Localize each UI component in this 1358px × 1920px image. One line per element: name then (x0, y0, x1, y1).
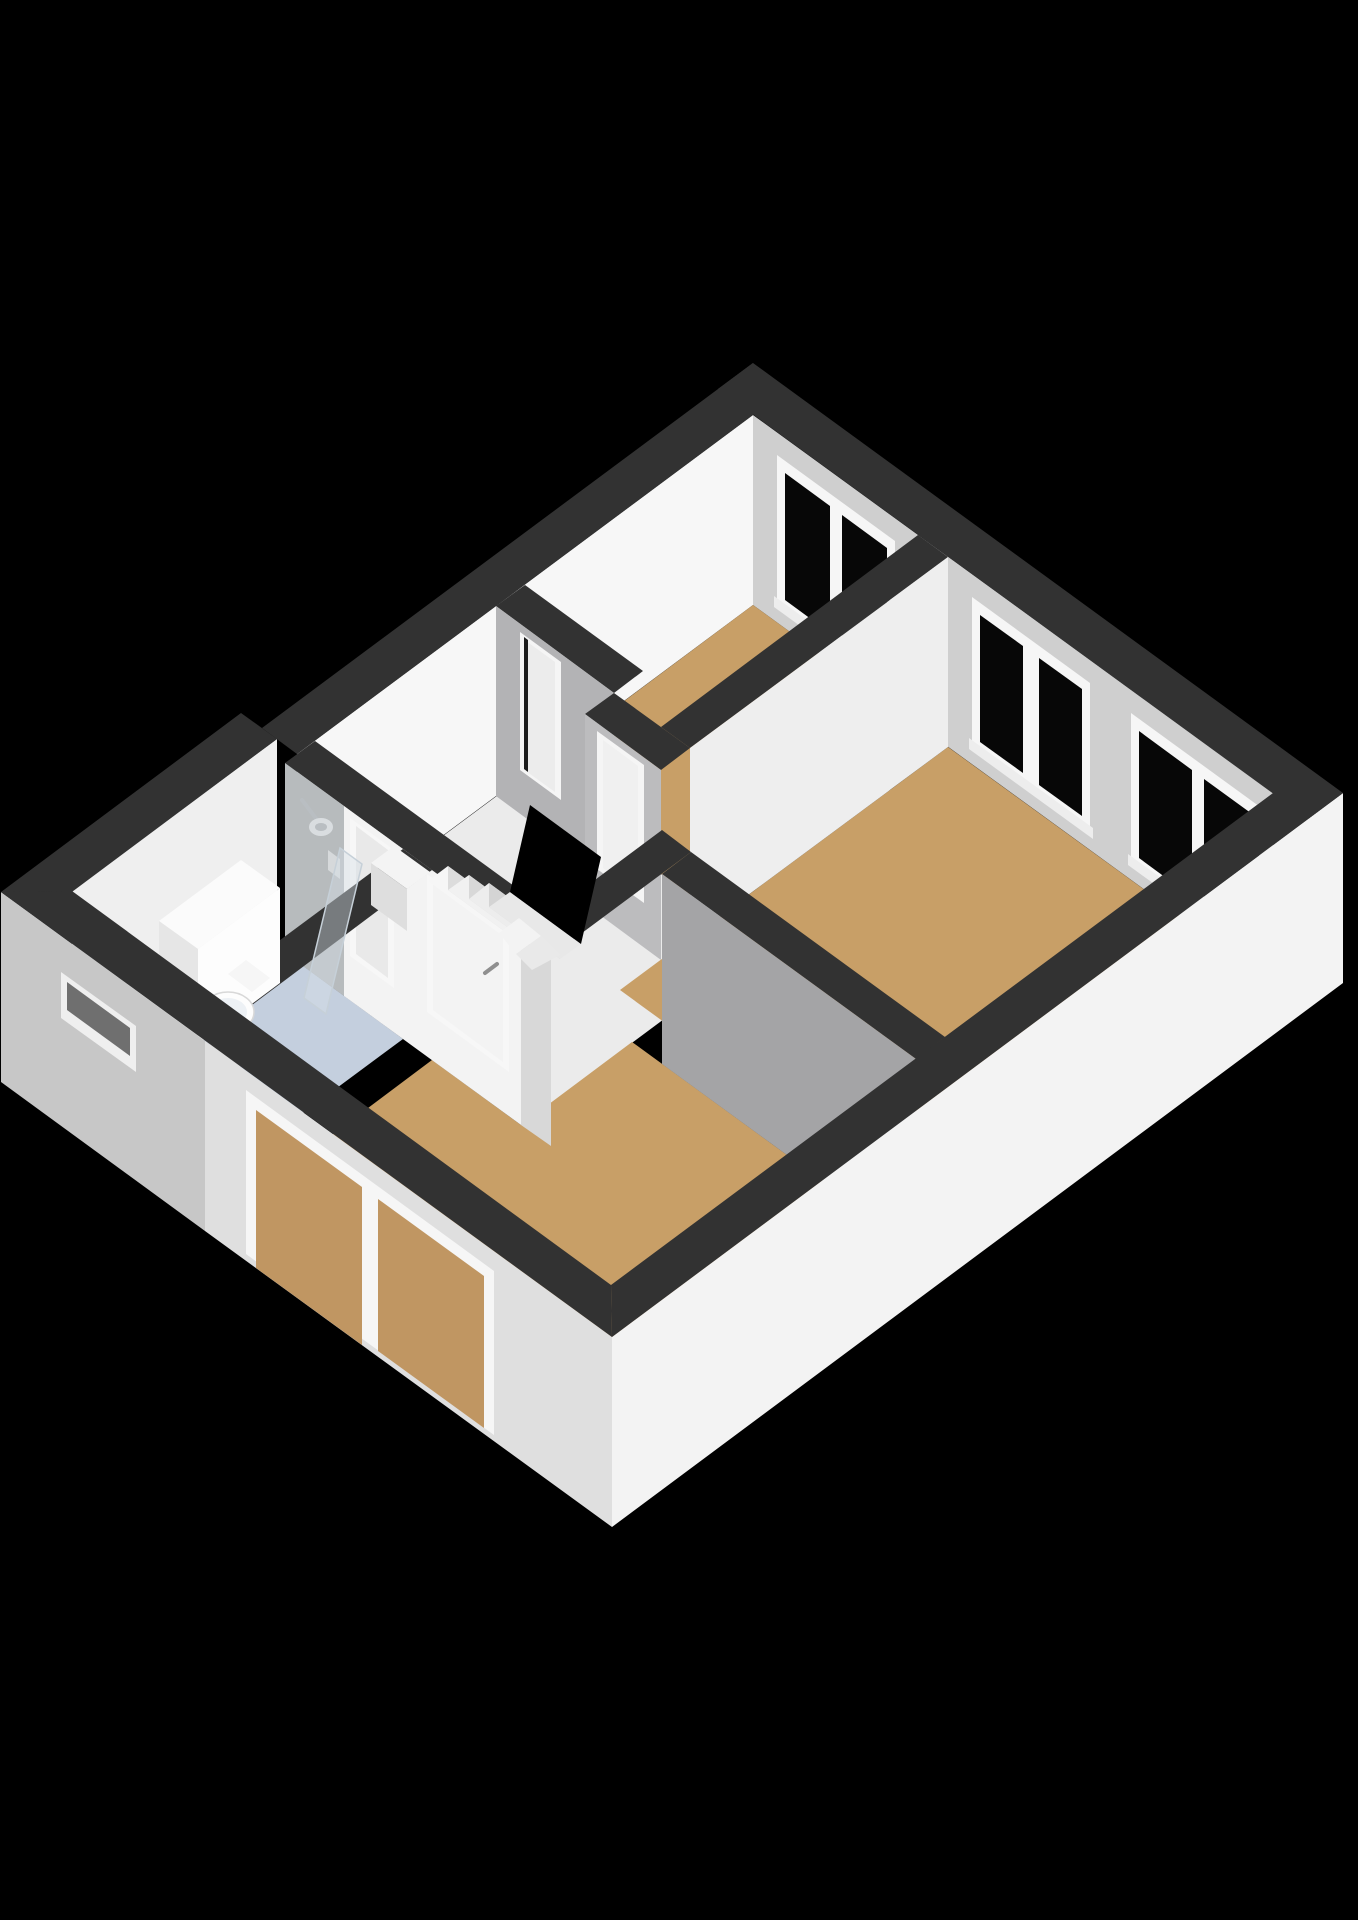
floorplan-3d-svg (0, 0, 1358, 1920)
door-bedroom-north-leaf (526, 641, 555, 792)
door-bedroom-north-gap (524, 637, 528, 772)
floorplan-3d-canvas (0, 0, 1358, 1920)
shower-head-center (315, 823, 327, 831)
